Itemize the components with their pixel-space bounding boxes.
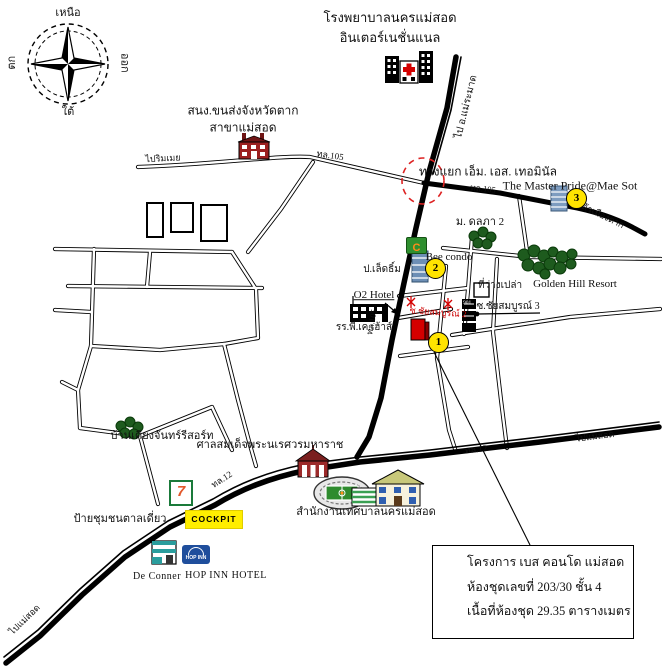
de-conner-icon xyxy=(152,541,176,564)
transport-office-label-line2: สาขาแม่สอด xyxy=(210,122,277,135)
empty-land-label: ที่ว่างเปล่า xyxy=(478,281,522,292)
p-led-label: ป.เล็ดธิ์ม xyxy=(363,265,401,276)
municipality-label: สำนักงานเทศบาลนครแม่สอด xyxy=(296,507,436,519)
house-number-901: 901 xyxy=(463,301,471,307)
hop-inn-logo-text: HOP INN xyxy=(182,555,210,561)
shrine-label: ศาลสมเด็จพระนเรศวรมหาราช xyxy=(197,440,344,452)
legend-box: โครงการ เบส คอนโด แม่สอด ห้องชุดเลขที่ 2… xyxy=(432,545,634,639)
municipality-hall-icon xyxy=(352,470,424,506)
badge-2: 2 xyxy=(425,258,446,279)
transport-office-icon xyxy=(238,133,270,159)
o2-hotel-label: O2 Hotel xyxy=(354,290,395,302)
soi-chai-somboon-3-label: ซ.ชัยสมบูรณ์ 3 xyxy=(476,302,539,313)
badge-3: 3 xyxy=(566,188,587,209)
compass-north-label: เหนือ xyxy=(55,8,80,20)
compass-south-label: ใต้ xyxy=(62,107,75,119)
compass-west-label: ตก xyxy=(7,56,19,70)
mae-sot-map: เหนือ ใต้ ออก ตก โรงพยาบาลนครแม่สอด อินเ… xyxy=(0,0,662,669)
compass-rose xyxy=(28,24,108,104)
subject-condo-icon xyxy=(411,319,429,340)
golden-hill-label: Golden Hill Resort xyxy=(533,279,617,291)
legend-line2: ห้องชุดเลขที่ 203/30 ชั้น 4 xyxy=(467,577,602,597)
seven-eleven-icon: 7 xyxy=(169,480,193,506)
pk-house-label: รร.พี.เค.เฮ้าส์ xyxy=(336,323,392,334)
city-blocks xyxy=(147,203,227,241)
c-brand-letter: C xyxy=(413,242,421,254)
hospital-label-line1: โรงพยาบาลนครแม่สอด xyxy=(323,11,456,25)
hop-inn-hotel-label: HOP INN HOTEL xyxy=(185,571,267,582)
de-conner-label: De Conner xyxy=(133,572,181,583)
c-brand-icon: C xyxy=(406,237,427,254)
transport-office-label-line1: สนง.ขนส่งจังหวัดตาก xyxy=(187,105,298,118)
junction-label: ทางแยก เอ็ม. เอส. เทอมินัล xyxy=(419,166,557,179)
hospital-icon xyxy=(385,51,433,83)
hop-inn-icon: HOP INN xyxy=(182,545,210,564)
baan-kiang-chan-label: บ้านเคียงจันทร์รีสอร์ท xyxy=(110,431,213,443)
seven-eleven-digit: 7 xyxy=(171,482,191,502)
legend-line1: โครงการ เบส คอนโด แม่สอด xyxy=(467,552,624,572)
badge-1: 1 xyxy=(428,332,449,353)
hop-inn-arch xyxy=(188,547,204,555)
village-dolapa-label: ม. ดลภา 2 xyxy=(456,217,504,229)
cockpit-sign: COCKPIT xyxy=(185,510,243,529)
compass-east-label: ออก xyxy=(118,53,130,73)
legend-line3: เนื้อที่ห้องชุด 29.35 ตารางเมตร xyxy=(467,601,631,621)
community-sign-label: ป้ายชุมชนตาลเดี่ยว xyxy=(74,514,167,526)
road-label-rim-moei: ไปริมเมย xyxy=(145,153,181,164)
hospital-label-line2: อินเตอร์เนชั่นแนล xyxy=(340,31,441,45)
